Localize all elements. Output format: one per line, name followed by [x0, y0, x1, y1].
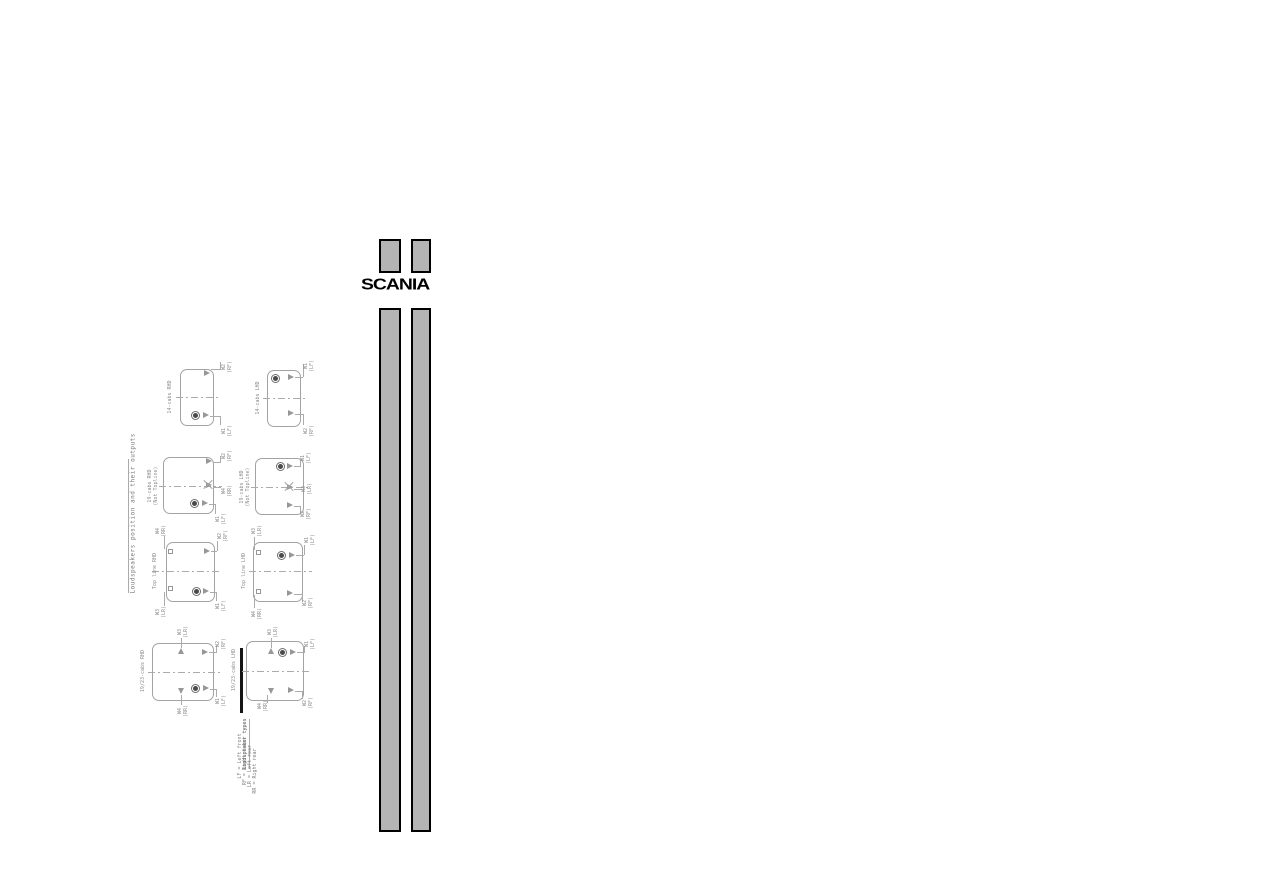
- speaker-label: W2 (RF): [303, 590, 315, 616]
- scanned-manual-page: SCANIA Loudspeakers position and their o…: [0, 0, 1263, 893]
- diagram-label-19-lhd: 19-cabs LHD (Not Topline): [239, 455, 251, 519]
- speaker-label: W2 (RF): [303, 690, 315, 716]
- diagram-label-topline-lhd: Top line LHD: [241, 539, 251, 603]
- speaker-pos: (RF): [309, 690, 315, 716]
- legend-item-rr: RR = Right rear: [252, 744, 260, 798]
- speaker-icon: [203, 412, 209, 418]
- centerline: [249, 571, 312, 572]
- speaker-pos: (LF): [222, 593, 228, 619]
- circled-speaker-symbol: [271, 374, 280, 383]
- speaker-label: W4 (RR): [252, 601, 264, 627]
- diagram-label-19-rhd: 19-cabs RHD (Not Topline): [147, 454, 159, 518]
- speaker-pos: (RR): [184, 698, 190, 724]
- alternative-position-cross: [202, 479, 214, 491]
- centerline: [176, 397, 220, 398]
- speaker-icon: [256, 589, 261, 594]
- speaker-icon: [168, 549, 173, 554]
- leader-line: [213, 462, 220, 463]
- speaker-pos: (RF): [228, 443, 234, 469]
- speaker-pos: (RF): [224, 523, 230, 549]
- speaker-pos: (RF): [309, 590, 315, 616]
- speaker-label: W3 (LR): [156, 599, 168, 625]
- speaker-label: W1 (LF): [301, 445, 313, 471]
- speaker-pos: (LF): [311, 631, 317, 657]
- centerline: [152, 571, 222, 572]
- speaker-pos: (LF): [222, 688, 228, 714]
- circled-speaker-symbol: [192, 587, 201, 596]
- alternative-position-cross: [283, 481, 295, 493]
- speaker-icon: [204, 548, 210, 554]
- speaker-icon: [287, 502, 293, 508]
- speaker-label: W1 (LF): [304, 353, 316, 379]
- speaker-label: W1 (LF): [216, 593, 228, 619]
- speaker-pos: (LF): [311, 527, 317, 553]
- speaker-pos: (RF): [228, 354, 234, 380]
- leader-line: [295, 377, 303, 378]
- title-underline: [128, 459, 129, 593]
- scania-logo: SCANIA: [361, 277, 447, 293]
- circled-speaker-symbol: [190, 499, 199, 508]
- circled-speaker-symbol: [276, 462, 285, 471]
- centerline: [148, 672, 222, 673]
- speaker-pos: (RR): [258, 601, 264, 627]
- speaker-pos: (RR): [228, 478, 234, 504]
- centerline: [242, 671, 312, 672]
- speaker-icon: [289, 552, 295, 558]
- speaker-pos: (LR): [308, 476, 314, 502]
- leader-line: [213, 487, 221, 488]
- speaker-label: W4 (RR): [156, 518, 168, 544]
- speaker-label: W4 (RR): [222, 478, 234, 504]
- speaker-label: W2 (RF): [301, 501, 313, 527]
- speaker-icon: [288, 410, 294, 416]
- leader-line: [294, 594, 302, 595]
- speaker-icon: [202, 649, 208, 655]
- speaker-label: W1 (LF): [305, 631, 317, 657]
- speaker-icon: [287, 590, 293, 596]
- speaker-icon: [203, 685, 209, 691]
- speaker-label: W2 (RF): [304, 418, 316, 444]
- speaker-pos: (RR): [162, 518, 168, 544]
- leader-line: [295, 691, 302, 692]
- diagram-label-1923-rhd: 19/23-cabs RHD: [140, 637, 150, 705]
- leader-line: [211, 551, 217, 552]
- diagram-label-line2: (Not Topline): [245, 455, 251, 519]
- speaker-label: W2 (RF): [218, 523, 230, 549]
- fold-mark-top-left: [379, 239, 401, 273]
- fold-bar-right: [411, 308, 431, 832]
- speaker-label: W1 (LF): [305, 527, 317, 553]
- leader-line: [220, 416, 221, 425]
- circled-speaker-symbol: [277, 551, 286, 560]
- leader-line: [295, 414, 303, 415]
- fold-bar-left: [379, 308, 401, 832]
- leader-line: [296, 555, 304, 556]
- speaker-icon: [206, 458, 212, 464]
- diagram-label-line2: (Not Topline): [153, 454, 159, 518]
- speaker-label: W3 (LR): [252, 518, 264, 544]
- speaker-label: W3 (LR): [302, 476, 314, 502]
- leader-line: [209, 652, 216, 653]
- speaker-icon: [178, 648, 184, 654]
- speaker-icon: [256, 550, 261, 555]
- speaker-label: W4 (RR): [258, 693, 270, 719]
- speaker-icon: [178, 688, 184, 694]
- speaker-icon: [287, 463, 293, 469]
- speaker-pos: (LF): [310, 353, 316, 379]
- speaker-pos: (LR): [258, 518, 264, 544]
- speaker-icon: [168, 586, 173, 591]
- speaker-label: W1 (LF): [216, 688, 228, 714]
- centerline: [263, 398, 307, 399]
- speaker-pos: (RR): [264, 693, 270, 719]
- speaker-label: W2 (RF): [222, 443, 234, 469]
- speaker-pos: (LR): [162, 599, 168, 625]
- speaker-icon: [290, 649, 296, 655]
- leader-line: [297, 652, 304, 653]
- speaker-label: W3 (LR): [268, 619, 280, 645]
- speaker-label: W3 (LR): [178, 619, 190, 645]
- fold-mark-top-right: [411, 239, 431, 273]
- diagram-label-14-rhd: 14-cabs RHD: [167, 367, 177, 427]
- page-title: Loudspeakers position and their outputs: [128, 458, 139, 594]
- circled-speaker-symbol: [191, 411, 200, 420]
- speaker-pos: (RF): [222, 631, 228, 657]
- speaker-label: W1 (LF): [222, 418, 234, 444]
- diagram-label-topline-rhd: Top line RHD: [152, 539, 162, 603]
- speaker-pos: (LR): [274, 619, 280, 645]
- speaker-pos: (LF): [228, 418, 234, 444]
- speaker-pos: (LF): [307, 445, 313, 471]
- speaker-label: W2 (RF): [216, 631, 228, 657]
- diagram-label-14-lhd: 14-cabs LHD: [255, 368, 265, 428]
- leader-line: [211, 369, 220, 370]
- speaker-label: W2 (RF): [222, 354, 234, 380]
- speaker-pos: (RF): [310, 418, 316, 444]
- speaker-pos: (LR): [184, 619, 190, 645]
- speaker-icon: [204, 370, 210, 376]
- speaker-icon: [268, 648, 274, 654]
- speaker-pos: (RF): [307, 501, 313, 527]
- speaker-icon: [288, 687, 294, 693]
- speaker-icon: [202, 500, 208, 506]
- speaker-label: W4 (RR): [178, 698, 190, 724]
- circled-speaker-symbol: [191, 684, 200, 693]
- circled-speaker-symbol: [278, 648, 287, 657]
- diagram-label-1923-lhd: 19/23-cabs LHD: [231, 636, 241, 704]
- speaker-icon: [288, 374, 294, 380]
- speaker-icon: [203, 588, 209, 594]
